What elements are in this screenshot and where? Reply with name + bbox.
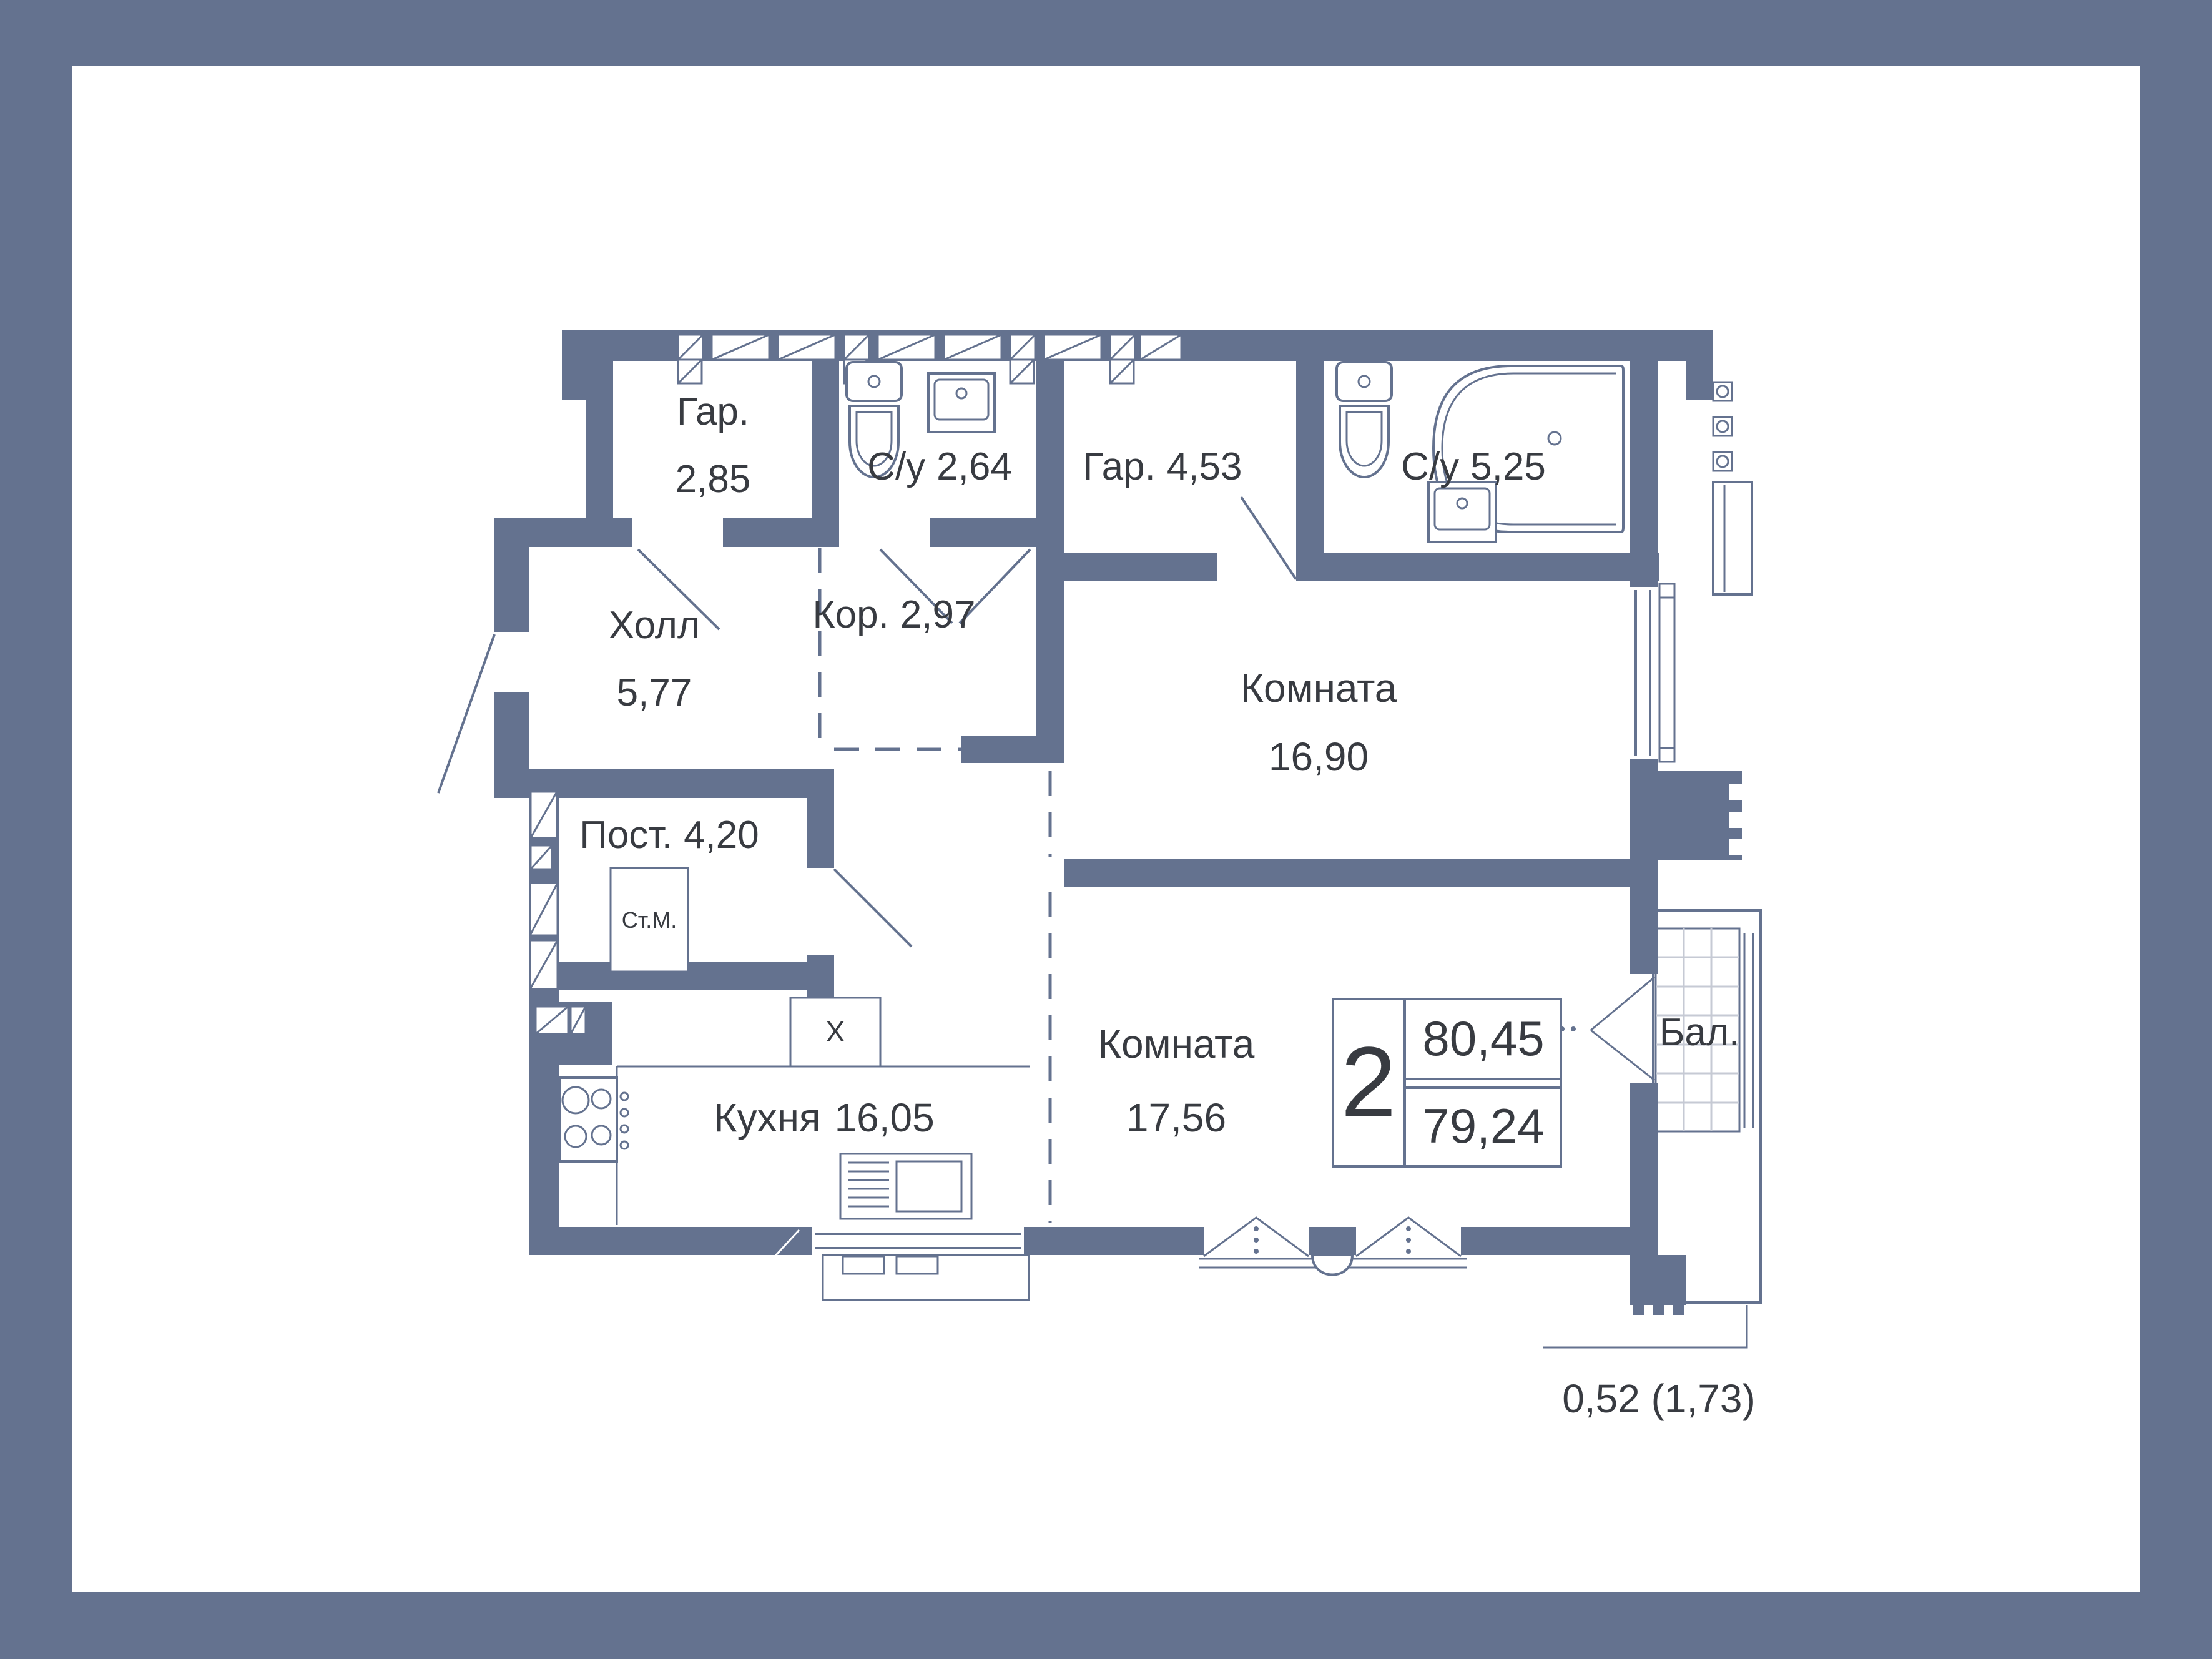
toilet-2 [1337,362,1392,477]
column-bump [1312,1255,1352,1275]
badge-area-total: 80,45 [1422,1011,1544,1066]
annotation: 0,52 (1,73) [1543,1305,1756,1421]
label-bathroom-1-name: С/у [867,445,925,488]
hatch-cell [678,360,702,383]
hatch-cell [944,335,1001,360]
label-laundry: Пост.4,20 [579,814,759,857]
window-room-1 [1636,584,1674,762]
label-hall-area: 5,77 [617,671,692,714]
hatch-cell [878,335,935,360]
label-bathroom-2: С/у5,25 [1401,445,1546,488]
hatch-cell [844,335,869,360]
label-wardrobe-2-name: Гар. [1083,445,1156,488]
label-wardrobe-2: Гар.4,53 [1083,445,1242,488]
label-corridor: Кор.2,97 [813,593,976,636]
riser-box [1713,417,1732,436]
vent-box [530,940,558,989]
label-laundry-name: Пост. [579,814,672,857]
riser-box [1713,452,1732,471]
shaft-label: X [826,1015,845,1048]
label-corridor-area: 2,97 [900,593,976,636]
vent-box [531,792,557,838]
label-bathroom-2-area: 5,25 [1470,445,1546,488]
label-bathroom-1: С/у2,64 [867,445,1012,488]
washing-machine: Ст.М. [611,868,688,972]
balcony-railing [1744,933,1753,1128]
door-laundry [834,869,912,947]
annotation-leader-line [1543,1305,1747,1347]
badge-rooms-count: 2 [1341,1026,1397,1138]
balcony-structure [1653,910,1761,1302]
hatch-cell [678,335,703,360]
hatch-cell [1010,335,1035,360]
washing-machine-label: Ст.М. [622,907,677,933]
vent-box [571,1007,586,1034]
hatch-cell [1044,335,1101,360]
label-laundry-area: 4,20 [684,814,759,857]
label-wardrobe-1-name: Гар. [677,390,749,433]
hatch-cell [1110,360,1134,383]
riser-box [1713,382,1732,401]
window-room-2-left [1204,1218,1309,1256]
radiator-vent [840,1154,971,1219]
hatch-cell [1010,360,1034,383]
hatch-cell [1110,335,1135,360]
label-hall-name: Холл [609,604,700,647]
sink-2 [1428,482,1496,542]
floorplan-drawing: Ст.М. X 2 80,45 79,24 Гар. 2,85 С/у2,64 … [0,0,2212,1659]
shaft-box: X [790,998,880,1066]
balcony-area-annotation: 0,52 (1,73) [1562,1376,1756,1421]
label-wardrobe-1-area: 2,85 [676,458,751,501]
badge-area-reduced: 79,24 [1422,1098,1544,1153]
entry-door [438,634,494,793]
right-risers [1713,382,1752,594]
label-bathroom-1-area: 2,64 [936,445,1012,488]
door-wardrobe-2 [1241,497,1296,579]
sink-1 [928,373,995,432]
vent-box [531,845,552,869]
outer-frame [0,0,2212,1659]
label-kitchen-area: 16,05 [835,1095,935,1140]
label-balcony: Бал. [1659,1011,1740,1054]
label-room-2-area: 17,56 [1126,1095,1226,1140]
label-wardrobe-2-area: 4,53 [1167,445,1242,488]
label-bathroom-2-name: С/у [1401,445,1459,488]
vent-box [530,883,558,935]
floorplan-page: Ст.М. X 2 80,45 79,24 Гар. 2,85 С/у2,64 … [0,0,2212,1659]
label-kitchen-name: Кухня [714,1095,820,1140]
label-corridor-name: Кор. [813,593,889,636]
window-room-2-right [1356,1218,1461,1256]
hatch-cell [1140,335,1181,360]
label-room-2-name: Комната [1098,1021,1255,1066]
hatch-cell [778,335,835,360]
shaft-window [1713,482,1752,594]
vent-box [536,1007,568,1034]
hatch-cell [712,335,769,360]
label-room-1-area: 16,90 [1269,734,1369,779]
label-kitchen: Кухня16,05 [714,1095,934,1140]
label-room-1-name: Комната [1241,666,1397,711]
pilaster [1658,771,1742,860]
info-badge: 2 80,45 79,24 [1333,999,1561,1166]
